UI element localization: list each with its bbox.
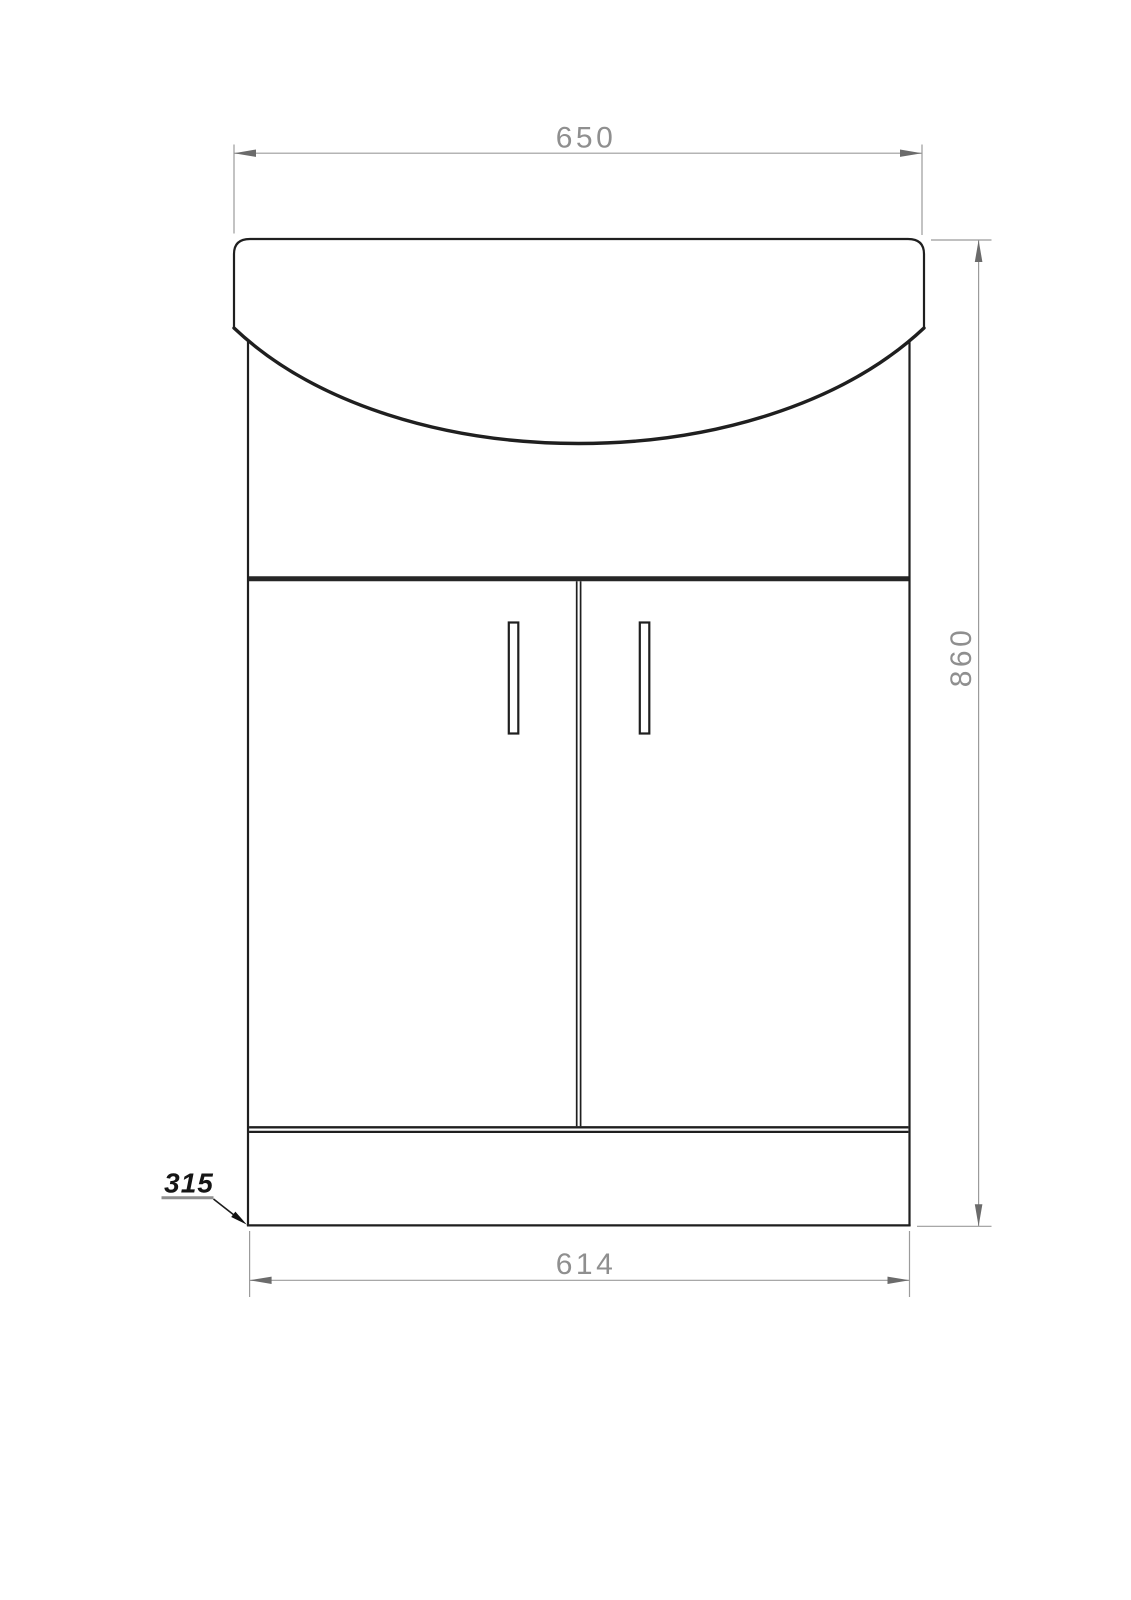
dimension-bottom-width-label: 614 xyxy=(556,1248,617,1281)
left-door-handle xyxy=(509,623,519,734)
dimension-overall-height: 860 xyxy=(917,240,992,1226)
dimension-overall-height-label: 860 xyxy=(945,627,978,688)
annotation-depth-label: 315 xyxy=(164,1168,214,1199)
arrowhead-right-icon xyxy=(888,1277,910,1284)
vanity-unit xyxy=(234,239,924,1226)
basin-outline xyxy=(234,239,924,444)
annotation-depth: 315 xyxy=(162,1168,247,1225)
dimension-top-width-label: 650 xyxy=(556,122,617,155)
right-door-handle xyxy=(640,623,650,734)
arrowhead-left-icon xyxy=(234,150,256,157)
arrowhead-left-icon xyxy=(250,1277,272,1284)
arrowhead-up-icon xyxy=(975,240,983,262)
arrowhead-right-icon xyxy=(900,150,922,157)
dimension-bottom-width: 614 xyxy=(250,1231,910,1297)
dimension-top-width: 650 xyxy=(234,122,922,236)
drawing-page: 650 860 614 315 xyxy=(0,0,1131,1600)
leader-arrowhead-icon xyxy=(231,1212,247,1225)
arrowhead-down-icon xyxy=(975,1204,983,1226)
vanity-technical-drawing: 650 860 614 315 xyxy=(0,0,1131,1600)
